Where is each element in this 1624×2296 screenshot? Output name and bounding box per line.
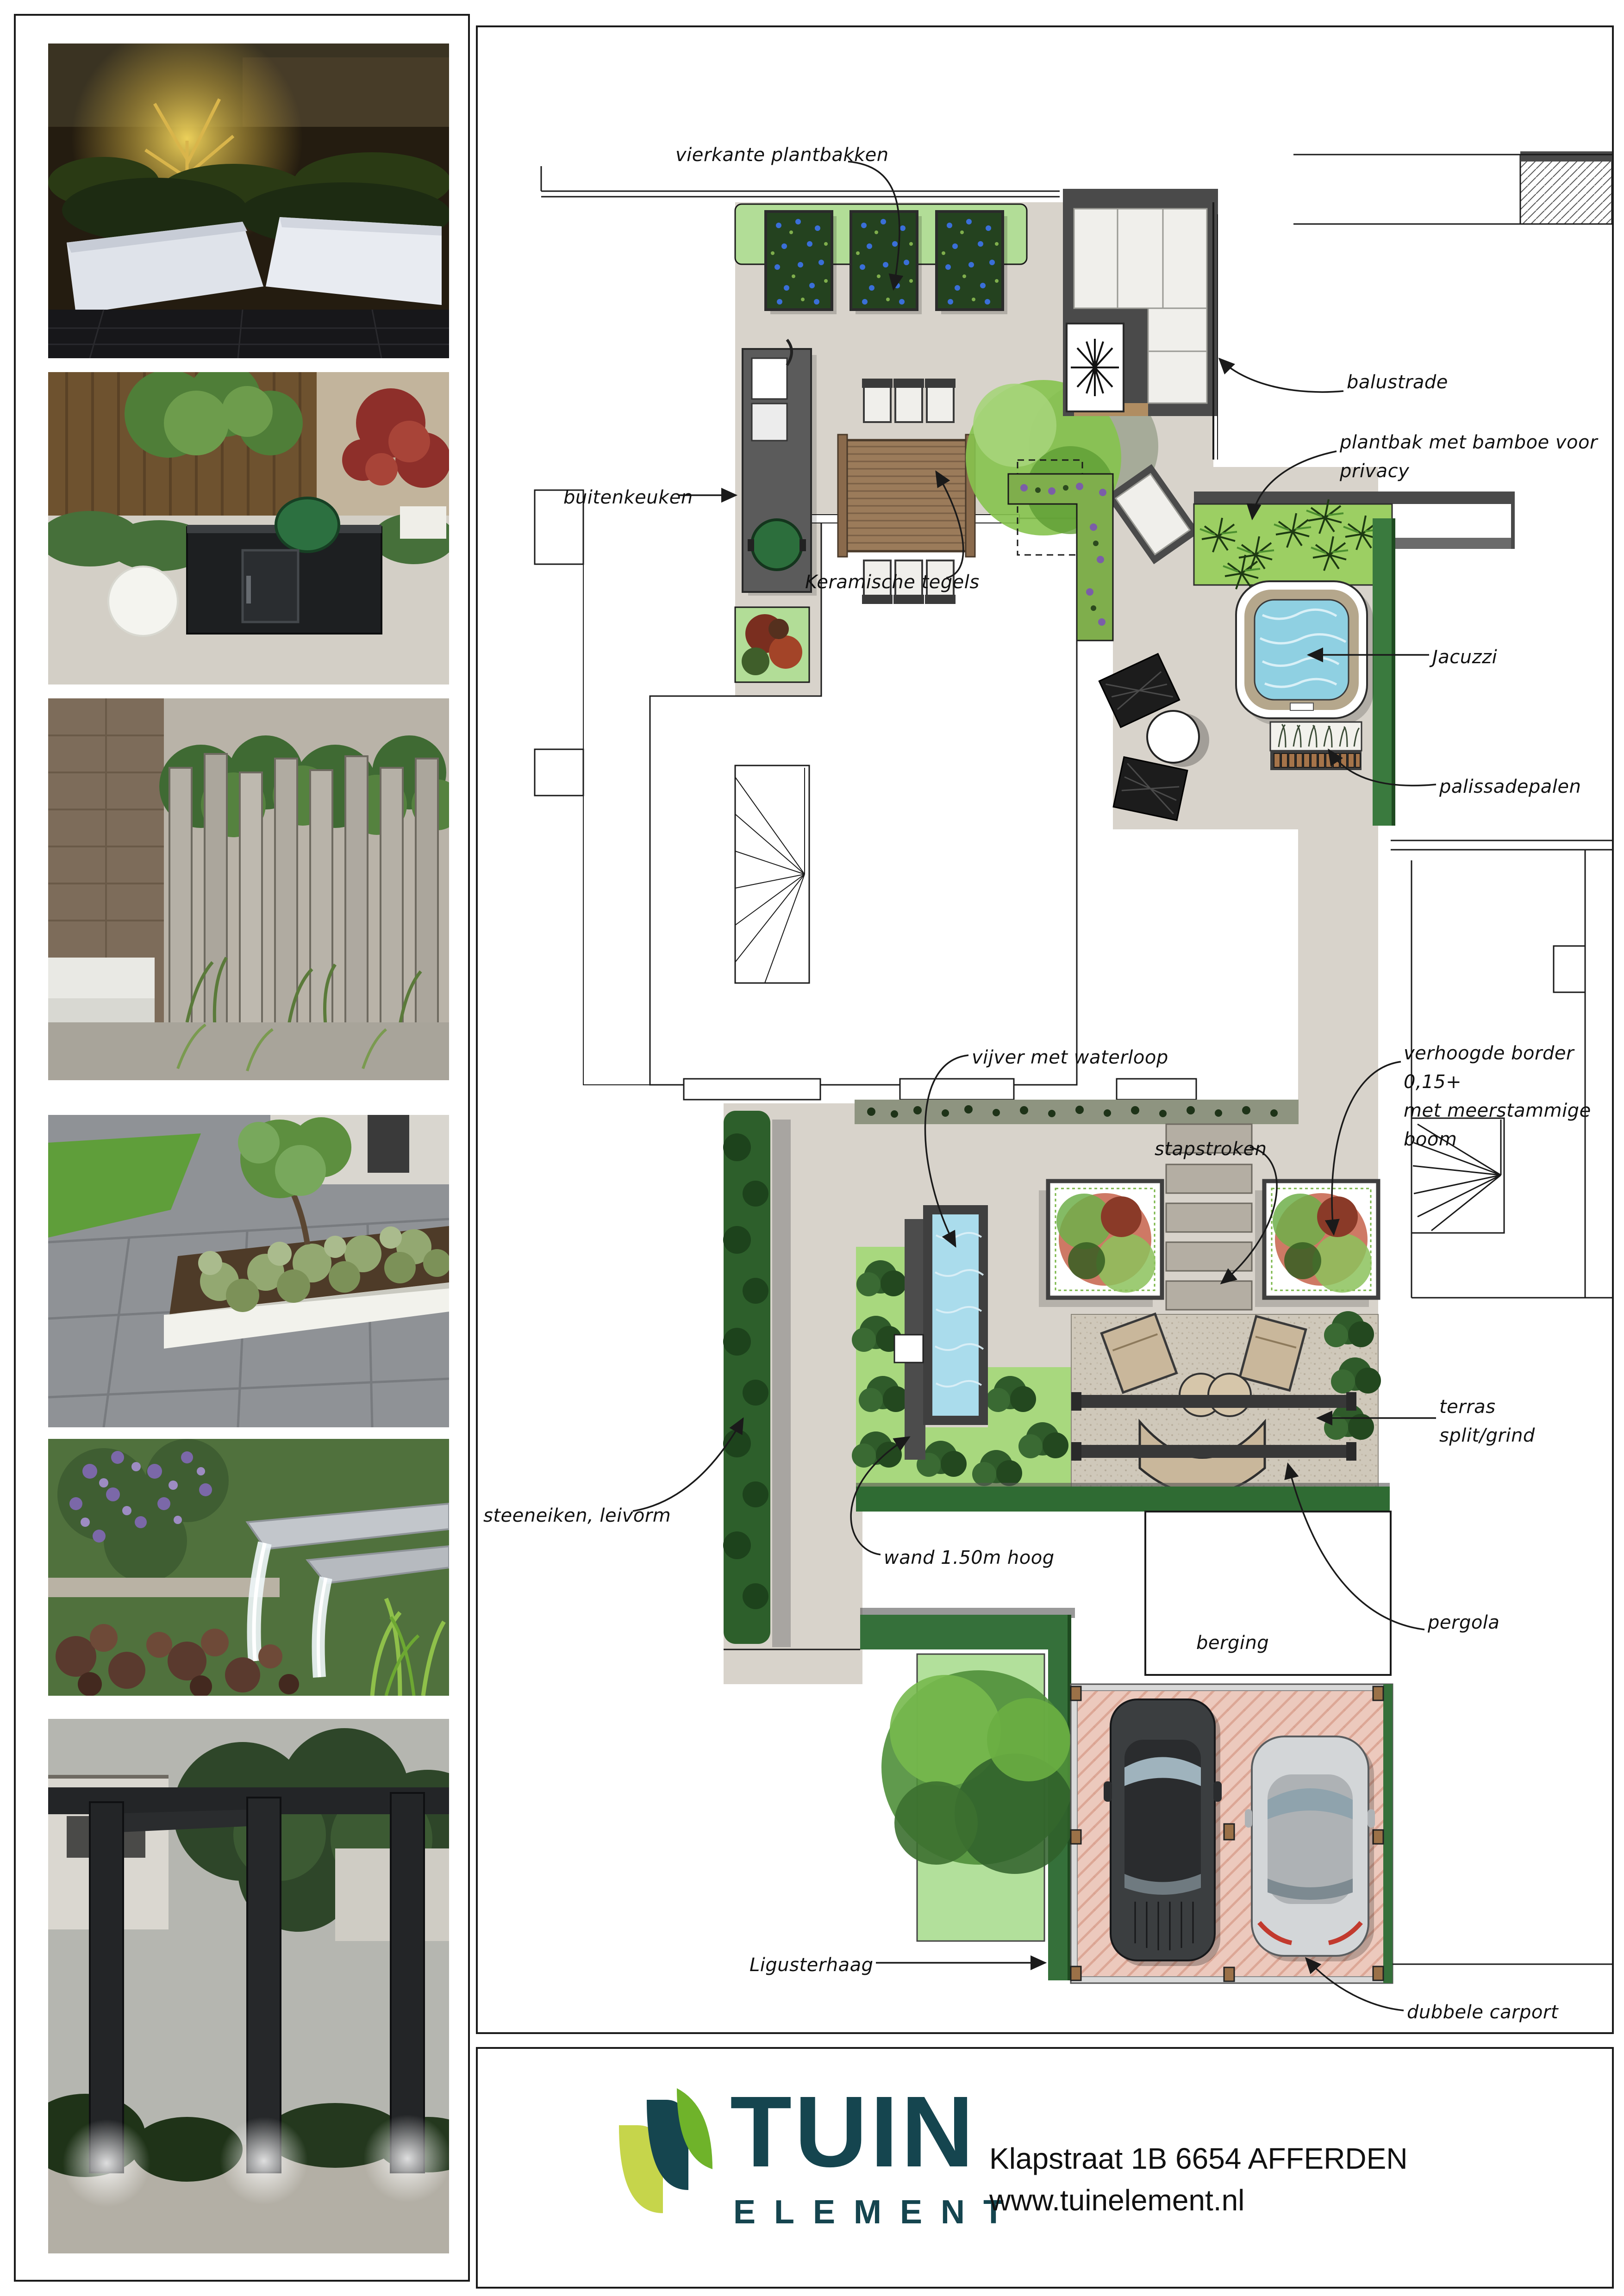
photo-outdoor-kitchen	[48, 372, 449, 684]
palisade-planter	[1270, 722, 1362, 770]
title-block: TUIN ELEMENT Klapstraat 1B 6654 AFFERDEN…	[476, 2047, 1614, 2289]
company-address: Klapstraat 1B 6654 AFFERDEN	[989, 2141, 1408, 2176]
raised-border-right	[1255, 1181, 1378, 1307]
car-silver	[1245, 1736, 1375, 1961]
photo-sidebar	[14, 14, 470, 2282]
square-planters	[766, 212, 1007, 314]
label-plantbak-bamboe: plantbak met bamboe voor privacy	[1340, 428, 1612, 485]
company-website[interactable]: www.tuinelement.nl	[989, 2183, 1244, 2217]
brand-name-top: TUIN	[730, 2074, 977, 2190]
jacuzzi	[1236, 581, 1374, 725]
label-verhoogde-border: verhoogde border 0,15+ met meerstammige …	[1404, 1039, 1612, 1154]
leader-balustrade	[1219, 359, 1343, 392]
photo-palisade-fence	[48, 698, 449, 1080]
photo-white-border-planter	[48, 1115, 449, 1427]
photo-art-3	[48, 698, 449, 1080]
garden-design-sheet: vierkante plantbakken buitenkeuken balus…	[0, 0, 1624, 2296]
label-balustrade: balustrade	[1347, 368, 1448, 397]
photo-uplit-tree-planters	[48, 44, 449, 358]
photo-art-1	[48, 44, 449, 358]
photo-water-feature	[48, 1439, 449, 1696]
label-dubbele-carport: dubbele carport	[1407, 1998, 1558, 2027]
green-wall	[1373, 518, 1395, 826]
label-terras: terras split/grind	[1439, 1393, 1535, 1450]
label-pergola: pergola	[1428, 1608, 1499, 1637]
label-stapstroken: stapstroken	[1155, 1135, 1267, 1164]
front-planting-bed	[881, 1654, 1076, 1941]
garden-plan-panel: vierkante plantbakken buitenkeuken balus…	[476, 25, 1614, 2034]
label-vijver: vijver met waterloop	[972, 1043, 1168, 1072]
label-jacuzzi: Jacuzzi	[1432, 643, 1497, 672]
photo-art-2	[48, 372, 449, 684]
outdoor-kitchen	[743, 340, 817, 596]
red-shrub-planter	[735, 607, 809, 682]
brand-name-bottom: ELEMENT	[733, 2193, 1022, 2231]
photo-art-6	[48, 1719, 449, 2253]
label-ligusterhaag: Ligusterhaag	[750, 1951, 873, 1979]
tuinelement-logo-mark	[614, 2081, 716, 2220]
photo-art-4	[48, 1115, 449, 1427]
raised-border-left	[1039, 1181, 1162, 1307]
garden-plan-drawing	[478, 27, 1612, 2032]
label-berging: berging	[1196, 1629, 1269, 1657]
label-steeneiken: steeneiken, leivorm	[483, 1501, 671, 1530]
grass-band	[855, 1100, 1299, 1124]
spiky-plant-box	[1067, 324, 1124, 411]
label-wand: wand 1.50m hoog	[884, 1543, 1055, 1572]
label-palissadepalen: palissadepalen	[1439, 772, 1581, 801]
photo-art-5	[48, 1439, 449, 1696]
photo-pergola-night	[48, 1719, 449, 2253]
label-buitenkeuken: buitenkeuken	[563, 483, 693, 512]
bamboo-planter	[1194, 499, 1392, 589]
steeneiken-hedge	[723, 1111, 791, 1647]
label-keramische-tegels: Keramische tegels	[805, 568, 980, 597]
green-band	[856, 1483, 1390, 1512]
car-dark	[1104, 1699, 1222, 1966]
boundary-lines-top	[541, 166, 1060, 197]
label-vierkante-plantbakken: vierkante plantbakken	[675, 141, 889, 169]
